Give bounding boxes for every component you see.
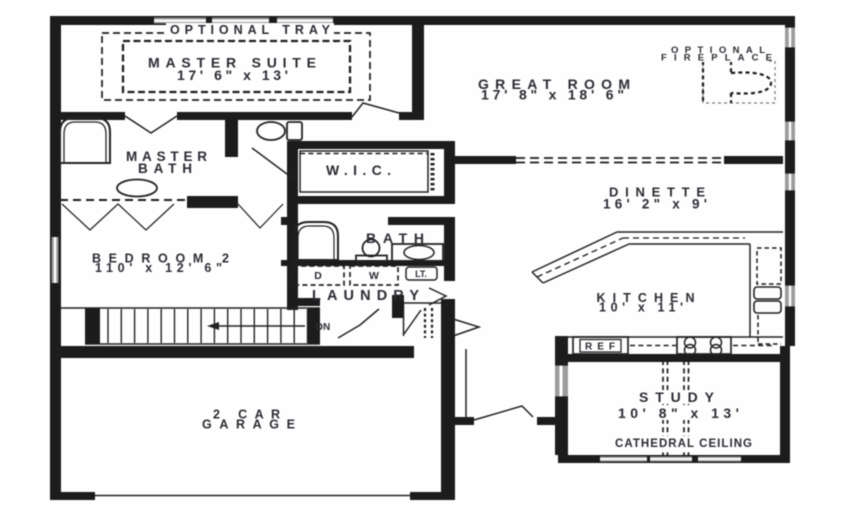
svg-text:W: W — [369, 270, 379, 282]
svg-text:REF: REF — [585, 342, 615, 353]
svg-text:16' 2" x 9': 16' 2" x 9' — [603, 197, 707, 212]
svg-text:LAUNDRY: LAUNDRY — [312, 288, 419, 304]
svg-text:LT.: LT. — [415, 269, 427, 279]
svg-text:CATHEDRAL CEILING: CATHEDRAL CEILING — [615, 438, 752, 450]
svg-text:10' x 11': 10' x 11' — [599, 301, 683, 315]
svg-text:D: D — [314, 270, 322, 282]
svg-text:DN: DN — [316, 322, 330, 333]
